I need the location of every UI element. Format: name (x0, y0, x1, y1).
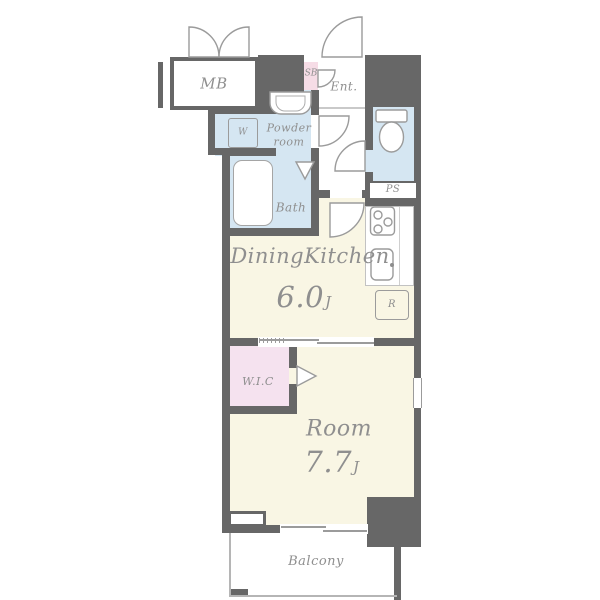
entrance-door-swing-icon (322, 17, 362, 57)
room-size-unit: J (353, 458, 360, 476)
powder-room-label: Powder room (267, 121, 312, 149)
dk-size-value: 6.0 (276, 280, 324, 314)
burner-icon (374, 225, 382, 233)
powder-door-swing-icon (319, 116, 349, 146)
door-swing-arc-icon (219, 27, 249, 57)
toilet-bowl-icon (380, 122, 404, 152)
burner-icon (384, 218, 392, 226)
wic-door-triangle-icon (297, 366, 316, 386)
dining-kitchen-size: 6.0J (276, 279, 331, 315)
dining-kitchen-label: DiningKitchen (230, 243, 389, 269)
entrance-label: Ent. (330, 80, 357, 95)
dk-door-swing-icon (330, 203, 364, 237)
door-swing-arc-icon (189, 27, 219, 57)
toilet-door-swing-icon (335, 141, 365, 171)
balcony-label: Balcony (288, 554, 344, 570)
folding-door-triangle-icon (296, 162, 314, 179)
room-size: 7.7J (304, 444, 359, 480)
bath-label: Bath (276, 201, 307, 216)
floor-plan: MB SB Ent. Powder room W Bath PS DiningK… (0, 0, 600, 600)
wic-label: W.I.C (242, 375, 274, 389)
dk-size-unit: J (325, 293, 332, 311)
room-label: Room (306, 415, 372, 443)
washer-label: W (238, 127, 248, 138)
refrigerator-label: R (388, 299, 396, 312)
room-size-value: 7.7 (304, 445, 352, 479)
powder-line2: room (274, 135, 305, 148)
toilet-icon (376, 110, 407, 122)
burner-icon (374, 211, 382, 219)
mb-label: MB (200, 75, 227, 94)
faucet-dot-icon (390, 263, 394, 267)
sb-label: SB (305, 68, 318, 79)
ps-label: PS (386, 184, 401, 197)
powder-line1: Powder (267, 121, 312, 134)
